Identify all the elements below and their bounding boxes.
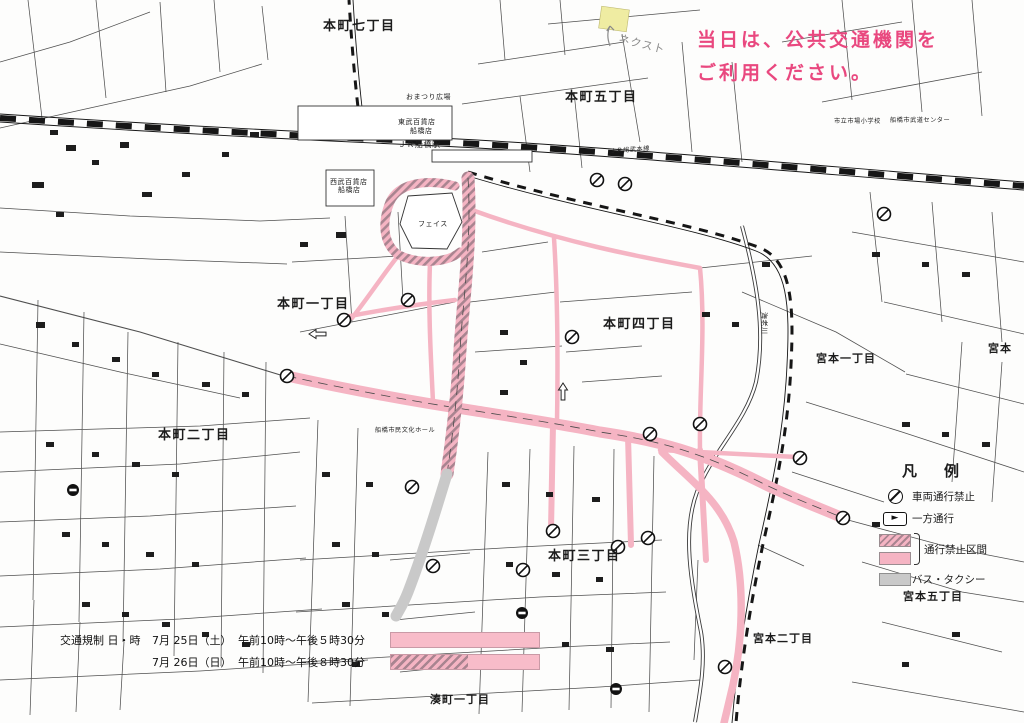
- street-route14: [0, 296, 287, 377]
- district-label-honcho2: 本町二丁目: [158, 427, 231, 443]
- handwritten-note: ネクスト: [617, 32, 666, 56]
- district-label-miyamoto-edge: 宮本: [988, 341, 1012, 355]
- public-transport-notice: 当日は、公共交通機関を ご利用ください。: [697, 24, 939, 90]
- district-label-miyamoto1: 宮本一丁目: [816, 351, 876, 365]
- legend-label: 通行禁止区間: [924, 542, 987, 557]
- no-entry-signs: [281, 174, 891, 674]
- schedule-date: 7月 26日（日）: [152, 654, 238, 670]
- legend-item-one-way: 一方通行: [878, 511, 1024, 526]
- district-label-honcho5: 本町五丁目: [565, 89, 638, 105]
- legend-item-no-entry: 車両通行禁止: [878, 489, 1024, 504]
- notice-line-1: 当日は、公共交通機関を: [697, 24, 939, 57]
- bus-taxi-route: [396, 474, 447, 616]
- legend-label: 車両通行禁止: [912, 489, 975, 504]
- schedule-bar-hatched: [390, 654, 540, 670]
- schedule-row-sunday: 7月 26日（日） 午前10時～午後８時30分: [60, 651, 540, 673]
- river-label-ebigawa: 海老川: [760, 312, 769, 335]
- district-label-honcho3: 本町三丁目: [548, 548, 621, 564]
- place-label-face-building: フェイス: [418, 220, 448, 228]
- legend-title: 凡 例: [902, 460, 1024, 481]
- schedule-date: 7月 25日（土）: [152, 632, 238, 648]
- traffic-regulation-flyer: ネクスト 本町七丁目 本町五丁目 本町一丁目 本町四丁目 本町二丁目 本町三丁目…: [0, 0, 1024, 723]
- one-way-arrow-icon: [883, 512, 907, 526]
- legend: 凡 例 車両通行禁止 一方通行 通行禁止区間 バス・タクシー: [878, 460, 1024, 594]
- street-network-east: [560, 0, 1024, 712]
- place-label-tobu-dept: 東武百貨店: [398, 117, 436, 126]
- district-label-honcho7: 本町七丁目: [323, 18, 396, 34]
- jr-station-building: [432, 150, 532, 162]
- prohibited-hatched-swatch: [879, 534, 911, 547]
- schedule-title: 交通規制 日・時: [60, 632, 152, 648]
- place-label-jr-funabashi-station: ＪＲ船橋駅: [398, 139, 441, 149]
- district-label-honcho1: 本町一丁目: [277, 296, 350, 312]
- building-blocks: [32, 130, 990, 667]
- place-label-seibu-dept: 西武百貨店: [330, 177, 368, 186]
- place-label-seibu-dept-2: 船橋店: [338, 185, 361, 194]
- legend-item-prohibited: 通行禁止区間: [878, 533, 1024, 565]
- district-label-minatocho1: 湊町一丁目: [430, 692, 490, 706]
- place-label-bunka-hall: 船橋市民文化ホール: [375, 426, 435, 434]
- legend-label: 一方通行: [912, 511, 954, 526]
- place-label-tobu-dept-2: 船橋店: [410, 126, 433, 135]
- schedule-time: 午前10時～午後５時30分: [238, 632, 390, 648]
- regulation-schedule: 交通規制 日・時 7月 25日（土） 午前10時～午後５時30分 7月 26日（…: [60, 629, 540, 673]
- district-label-miyamoto2: 宮本二丁目: [753, 631, 813, 645]
- schedule-row-saturday: 交通規制 日・時 7月 25日（土） 午前10時～午後５時30分: [60, 629, 540, 651]
- legend-item-bus-taxi: バス・タクシー: [878, 572, 1024, 587]
- no-entry-icon: [888, 489, 903, 504]
- place-label-budo-center: 船橋市武道センター: [890, 116, 950, 124]
- legend-bracket: [914, 533, 920, 565]
- traffic-regulation-map: ネクスト 本町七丁目 本町五丁目 本町一丁目 本町四丁目 本町二丁目 本町三丁目…: [0, 0, 1024, 723]
- legend-label: バス・タクシー: [912, 572, 986, 587]
- notice-line-2: ご利用ください。: [697, 57, 939, 90]
- place-label-ichiba-school: 市立市場小学校: [834, 117, 881, 125]
- schedule-time: 午前10時～午後８時30分: [238, 654, 390, 670]
- bus-taxi-swatch: [879, 573, 911, 586]
- prohibited-pink-swatch: [879, 552, 911, 565]
- district-label-honcho4: 本町四丁目: [603, 316, 676, 332]
- place-label-omatsuri-plaza: おまつり広場: [406, 92, 451, 101]
- schedule-bar-solid: [390, 632, 540, 648]
